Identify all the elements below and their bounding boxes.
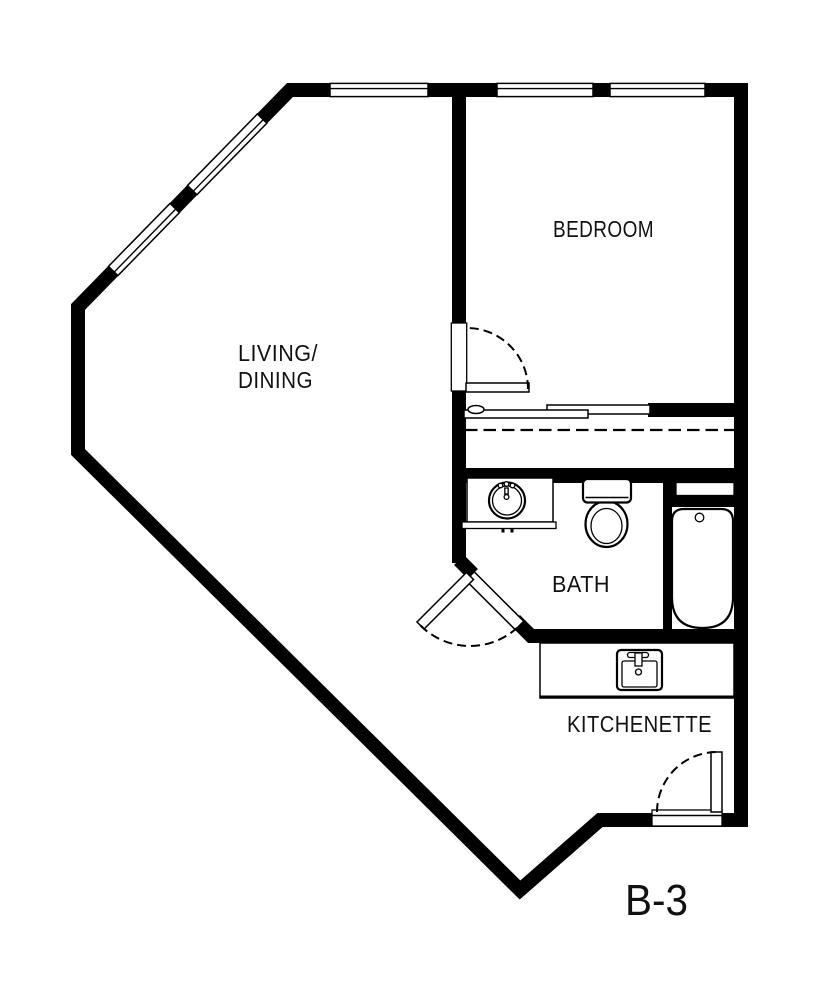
top-wall-window-2 (497, 83, 593, 96)
diagonal-wall-window-1 (187, 114, 266, 195)
bathtub-icon (672, 509, 733, 628)
bedroom-door-swing-arc (467, 328, 528, 389)
label-bath: BATH (552, 571, 610, 597)
wall-tub-alcove-side (663, 507, 672, 629)
floor-plan-svg: LIVING/ DINING BEDROOM BATH KITCHENETTE … (0, 0, 818, 998)
label-unit-name: B-3 (625, 876, 688, 925)
bath-door-leaf (417, 572, 474, 629)
label-kitchenette: KITCHENETTE (567, 711, 712, 737)
kitchen-sink-icon (617, 650, 662, 690)
wall-living-bedroom-upper (452, 97, 466, 323)
bath-door-opening (466, 572, 524, 630)
entry-door-leaf (711, 752, 722, 812)
tub-alcove-niche (676, 483, 734, 496)
label-bedroom: BEDROOM (553, 216, 654, 242)
bath-door-swing-arc (421, 626, 520, 647)
diagonal-wall-window-2 (108, 203, 179, 275)
label-living-line1: LIVING/ (238, 340, 318, 366)
entry-door-swing-arc (657, 752, 717, 812)
toilet-icon (583, 479, 631, 547)
label-living-line2: DINING (238, 367, 313, 393)
closet-sliding-door-handle (468, 406, 484, 414)
top-wall-window-1 (330, 83, 428, 96)
wall-bedroom-closet-solid (648, 403, 734, 417)
floor-plan-page: LIVING/ DINING BEDROOM BATH KITCHENETTE … (0, 0, 818, 998)
top-wall-window-3 (610, 83, 705, 96)
bath-vanity-sink-icon (462, 478, 556, 533)
bedroom-door-opening (451, 323, 466, 391)
bedroom-door-leaf (466, 383, 529, 392)
wall-bath-kitchenette-divider (528, 629, 748, 643)
